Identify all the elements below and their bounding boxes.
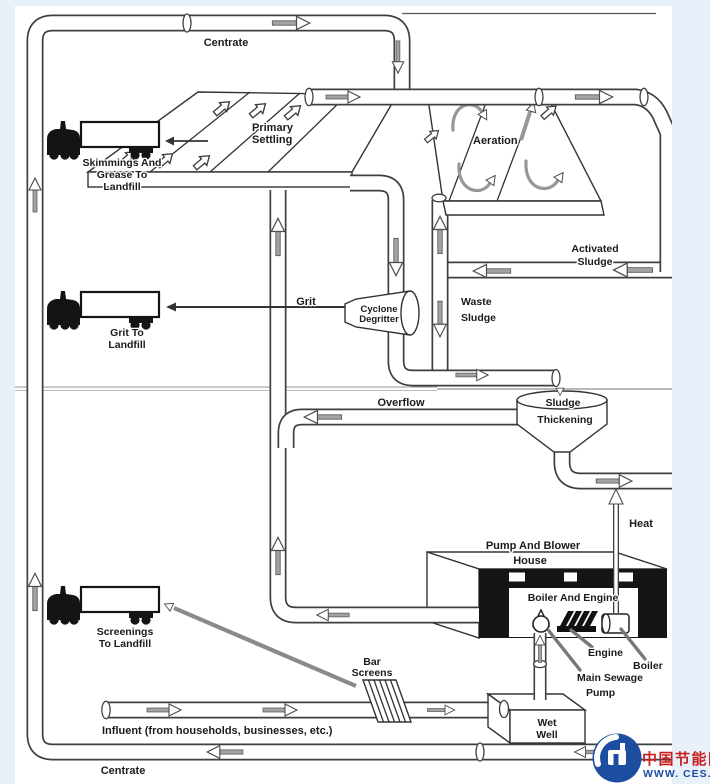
label-grit-truck: Grit To: [110, 327, 144, 339]
label-boiler: Boiler: [633, 660, 663, 672]
label-aeration: Aeration: [473, 135, 518, 147]
label-skimmings-truck: Skimmings And: [83, 157, 162, 169]
label-primary-settling-2: Settling: [252, 134, 292, 146]
label-grit-truck-2: Landfill: [108, 339, 145, 351]
label-pump-house: Pump And Blower: [486, 540, 581, 552]
label-pump-house-2: House: [513, 555, 547, 567]
label-waste-sludge: Waste: [461, 296, 492, 308]
label-waste-sludge-2: Sludge: [461, 312, 496, 324]
house-window: [509, 573, 525, 582]
boiler-symbol: [602, 614, 629, 633]
watermark-cn-text: 中国节能网: [642, 750, 710, 768]
watermark-url-text: WWW. CES. CN: [643, 768, 710, 780]
label-centrate-bottom: Centrate: [101, 765, 146, 777]
house-window: [618, 573, 633, 582]
label-grit: Grit: [296, 296, 316, 308]
label-skimmings-truck-2: Grease To: [97, 169, 148, 181]
label-engine: Engine: [588, 647, 623, 659]
label-boiler-engine: Boiler And Engine: [528, 592, 619, 604]
house-window: [564, 573, 577, 582]
label-screenings-truck-2: To Landfill: [99, 638, 151, 650]
label-centrate-top: Centrate: [204, 37, 249, 49]
label-skimmings-truck-3: Landfill: [103, 181, 140, 193]
centrate-pipe-joint: [476, 743, 484, 761]
label-heat: Heat: [629, 518, 653, 530]
label-bar-screens-2: Screens: [352, 667, 393, 679]
label-primary-settling: Primary: [252, 122, 294, 134]
label-cyclone-2: Degritter: [359, 314, 399, 325]
label-wet-well-2: Well: [536, 729, 557, 741]
wastewater-plant-diagram: Centrate Primary Settling Aeration Skimm…: [0, 0, 710, 784]
label-screenings-truck: Screenings: [97, 626, 154, 638]
label-activated-sludge: Activated: [571, 243, 618, 255]
diagram-canvas: Centrate Primary Settling Aeration Skimm…: [0, 0, 710, 784]
ras-pipe-mouth: [432, 194, 446, 202]
label-main-sewage-pump-2: Pump: [586, 687, 615, 699]
label-influent: Influent (from households, businesses, e…: [102, 725, 333, 737]
label-overflow: Overflow: [377, 397, 425, 409]
label-main-sewage-pump: Main Sewage: [577, 672, 643, 684]
label-activated-sludge-2: Sludge: [577, 256, 612, 268]
label-thickening-2: Thickening: [537, 414, 592, 426]
label-wet-well: Wet: [537, 717, 557, 729]
label-thickening: Sludge: [545, 397, 580, 409]
